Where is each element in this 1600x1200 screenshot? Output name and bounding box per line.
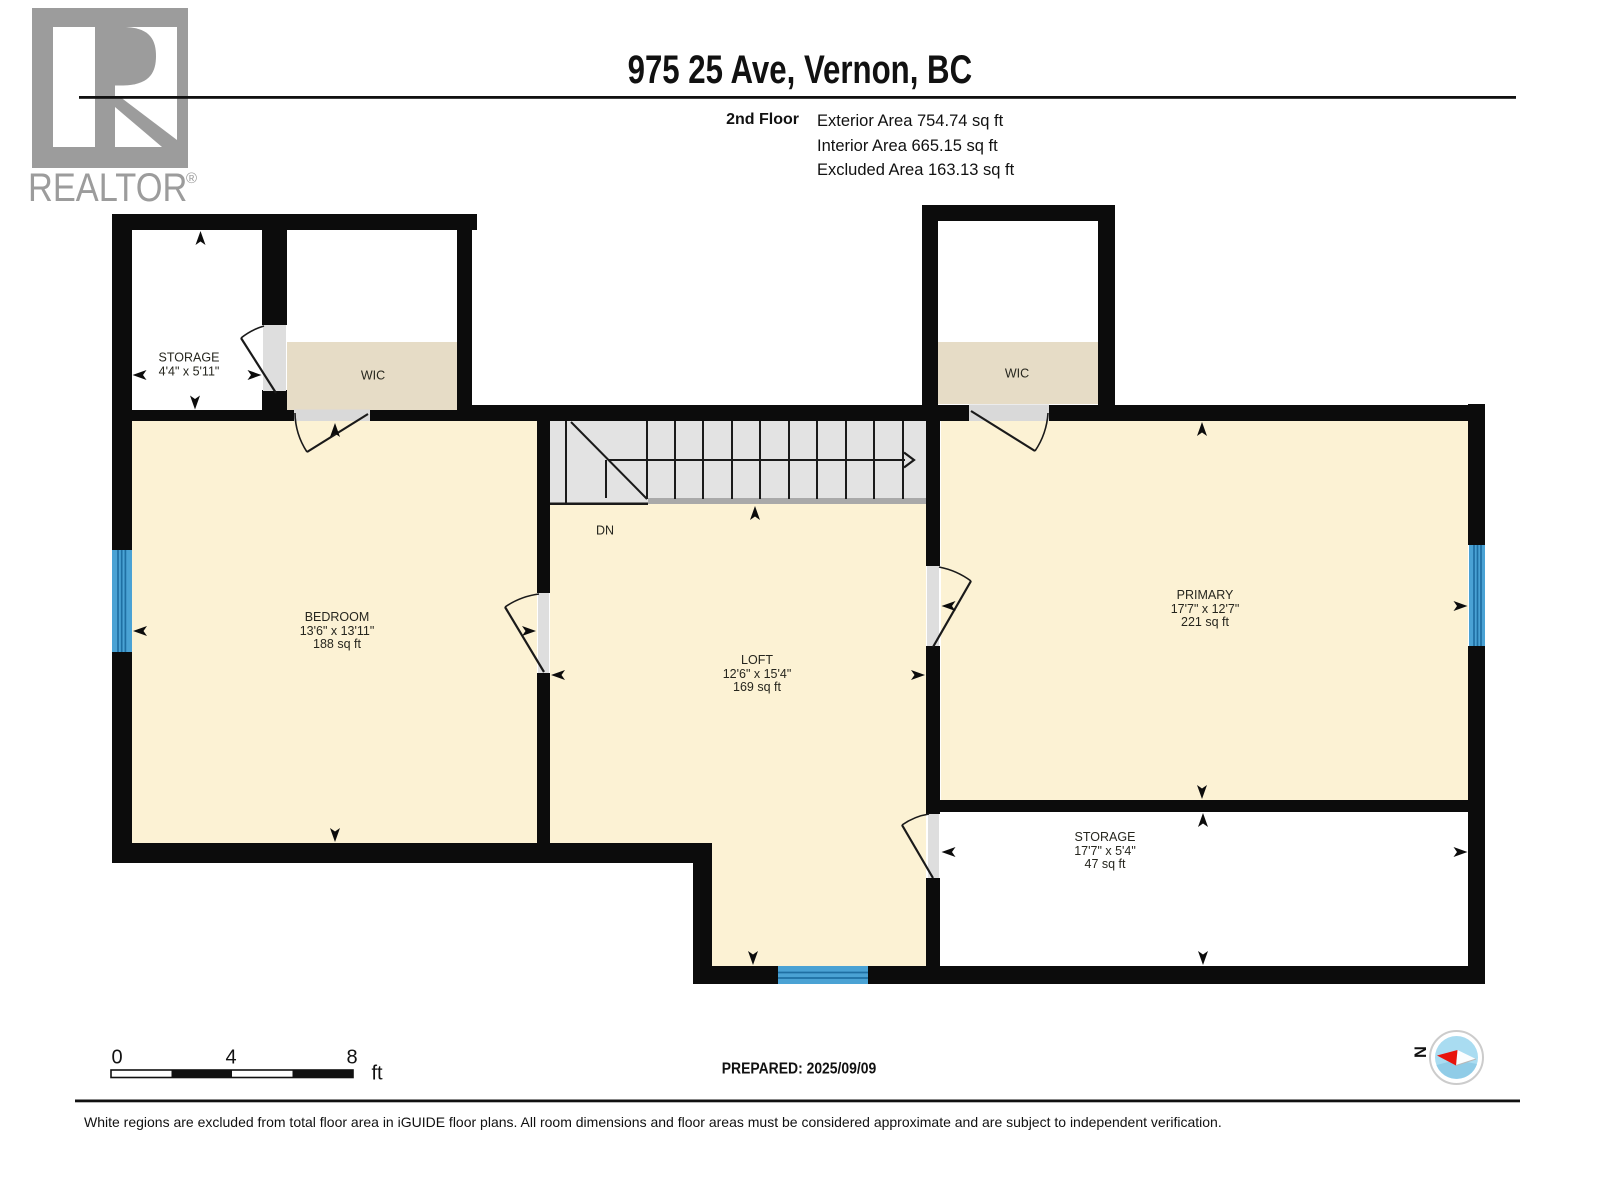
svg-text:N: N (1412, 1046, 1430, 1058)
